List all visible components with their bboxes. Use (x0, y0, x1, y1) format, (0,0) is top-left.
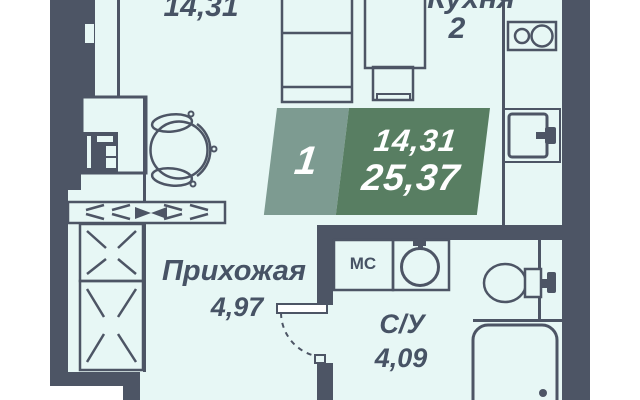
bathroom-area-label: 4,09 (375, 344, 428, 372)
partition-line-left (117, 0, 120, 97)
wall-left-top (50, 0, 95, 97)
wall-right (562, 0, 590, 400)
badge-living-area: 14,31 (372, 125, 459, 158)
kitchen-number-label: 2 (449, 13, 466, 45)
hallway-area-label: 4,97 (211, 293, 264, 321)
armchair-icon (83, 132, 118, 172)
wall-bathroom-top (317, 225, 562, 240)
shelf-icon (68, 202, 225, 223)
wall-bottom-stub (123, 372, 140, 400)
apartment-info-badge: 1 14,31 25,37 (264, 108, 490, 215)
wall-left-low (50, 190, 68, 372)
bathroom-label: С/У (379, 310, 424, 338)
wall-notch (85, 24, 94, 43)
living-room-area-label: 14,31 (163, 0, 238, 23)
badge-areas-section: 14,31 25,37 (336, 108, 490, 215)
badge-rooms-section: 1 (264, 108, 349, 215)
shower-partition-line (473, 319, 562, 322)
storage-label: МС (350, 255, 376, 273)
wall-bathroom-left-upper (317, 225, 333, 305)
hallway-label: Прихожая (162, 256, 306, 286)
kitchen-label: Кухня (427, 0, 515, 15)
badge-total-area: 25,37 (360, 158, 462, 197)
wall-bathroom-left-lower (317, 363, 333, 400)
badge-rooms-count: 1 (292, 139, 321, 184)
wall-left-mid (50, 97, 81, 190)
floor-plan: 14,31 Кухня 2 Прихожая 4,97 С/У 4,09 МС … (0, 0, 640, 400)
outside-bottom-left (0, 386, 123, 400)
